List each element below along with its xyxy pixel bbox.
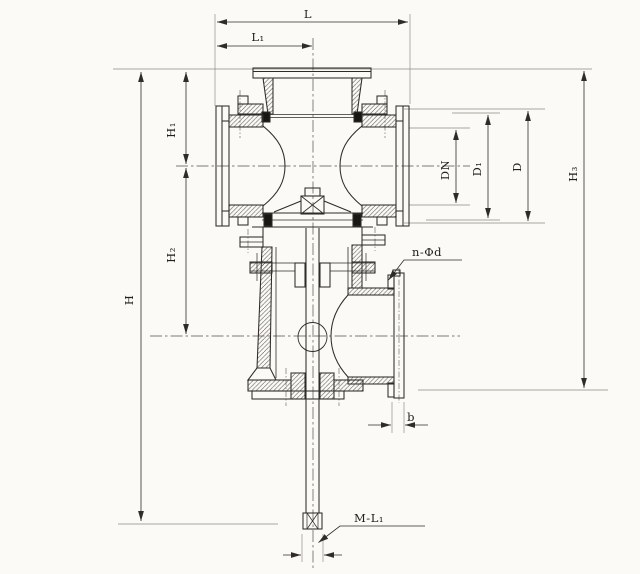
dim-label-H2: H₂ (164, 247, 178, 263)
dim-label-L: L (304, 7, 312, 21)
dim-label-D1: D₁ (470, 162, 484, 177)
dim-label-H3: H₃ (566, 166, 580, 182)
dim-label-DN: DN (438, 160, 452, 180)
dim-label-b: b (407, 410, 415, 424)
valve-stem (303, 228, 322, 529)
lower-body (240, 227, 404, 399)
outlet-flange (331, 270, 404, 398)
dim-label-D: D (510, 162, 524, 172)
upper-gasket-joint (262, 112, 362, 122)
dim-label-M-L1: M-L₁ (354, 511, 384, 525)
valve-body (216, 68, 409, 529)
top-neck-flange (238, 68, 387, 114)
dim-label-n-phi-d: n-Φd (412, 245, 442, 259)
drawing-sheet: L L₁ H₁ H₂ H DN D₁ D H₃ n-Φd b M-L₁ (0, 0, 640, 574)
centerlines (150, 38, 470, 571)
dim-label-H: H (122, 295, 136, 306)
bonnet-packing-box (252, 188, 373, 227)
dim-label-H1: H₁ (164, 122, 178, 138)
dim-label-L1: L₁ (251, 30, 264, 44)
leader-M-L1 (319, 526, 426, 543)
valve-disc (298, 323, 327, 352)
valve-technical-drawing: L L₁ H₁ H₂ H DN D₁ D H₃ n-Φd b M-L₁ (0, 0, 640, 574)
dimension-labels: L L₁ H₁ H₂ H DN D₁ D H₃ n-Φd b M-L₁ (122, 7, 580, 525)
